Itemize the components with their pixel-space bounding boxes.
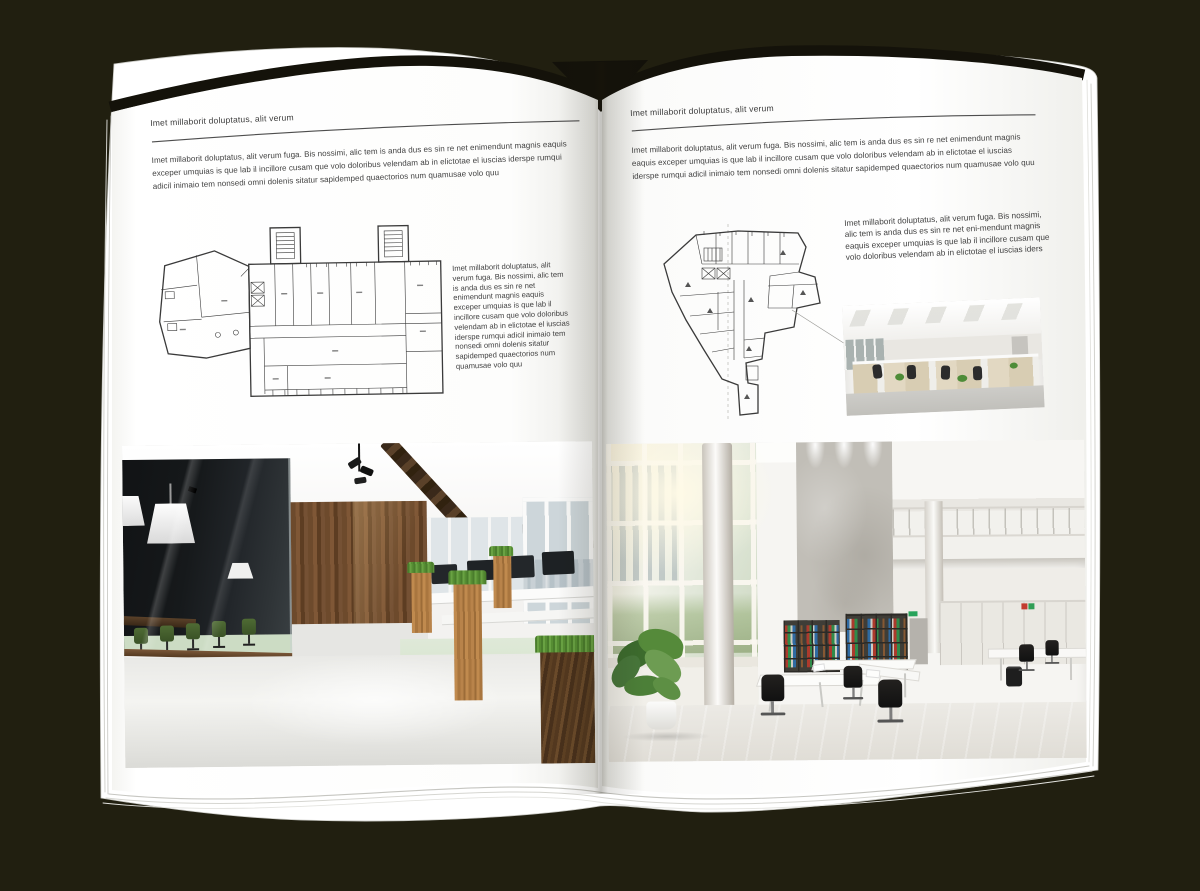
office-photo-small [842, 297, 1045, 416]
photo-caption-left: Imet millaborit doluptatus, alit verum f… [452, 259, 574, 371]
mezzanine [892, 440, 1085, 564]
right-page-content: Imet millaborit doluptatus, alit verum I… [630, 94, 1040, 184]
desk [988, 648, 1087, 659]
office-photo-right [606, 440, 1087, 762]
planter-grass [448, 570, 486, 584]
office-chair [872, 364, 883, 379]
planter-grass [489, 546, 513, 556]
desk-leg [1000, 659, 1002, 681]
office-chair [973, 366, 983, 380]
exit-sign [908, 611, 917, 616]
floor-plan-left [152, 221, 447, 412]
column [702, 443, 734, 711]
office-chair [941, 365, 950, 379]
glass-meeting-room [122, 458, 292, 656]
sun-glare [606, 440, 777, 574]
railing [893, 506, 1085, 538]
desk-leg [1070, 658, 1072, 680]
planter [540, 649, 595, 764]
first-aid-sign [1021, 603, 1027, 609]
photo-caption-right: Imet millaborit doluptatus, alit verum f… [844, 209, 1052, 264]
exit-sign [1028, 603, 1034, 609]
plant-pot [646, 701, 676, 729]
planter [411, 571, 432, 633]
monitor [542, 551, 575, 575]
concrete-wall [796, 442, 894, 633]
desk-leg [904, 673, 906, 697]
plant-shadow [623, 731, 711, 742]
planter-grass [535, 635, 595, 653]
glass-reflection [122, 458, 292, 656]
paper [866, 669, 881, 678]
door [910, 618, 928, 664]
planter-grass [407, 562, 434, 573]
magazine-spread: Imet millaborit doluptatus, alit verum I… [0, 0, 1200, 891]
office-chair [907, 365, 917, 379]
planter [493, 554, 512, 608]
planter [453, 582, 482, 700]
office-photo-left [122, 441, 595, 768]
downlights [796, 442, 893, 513]
